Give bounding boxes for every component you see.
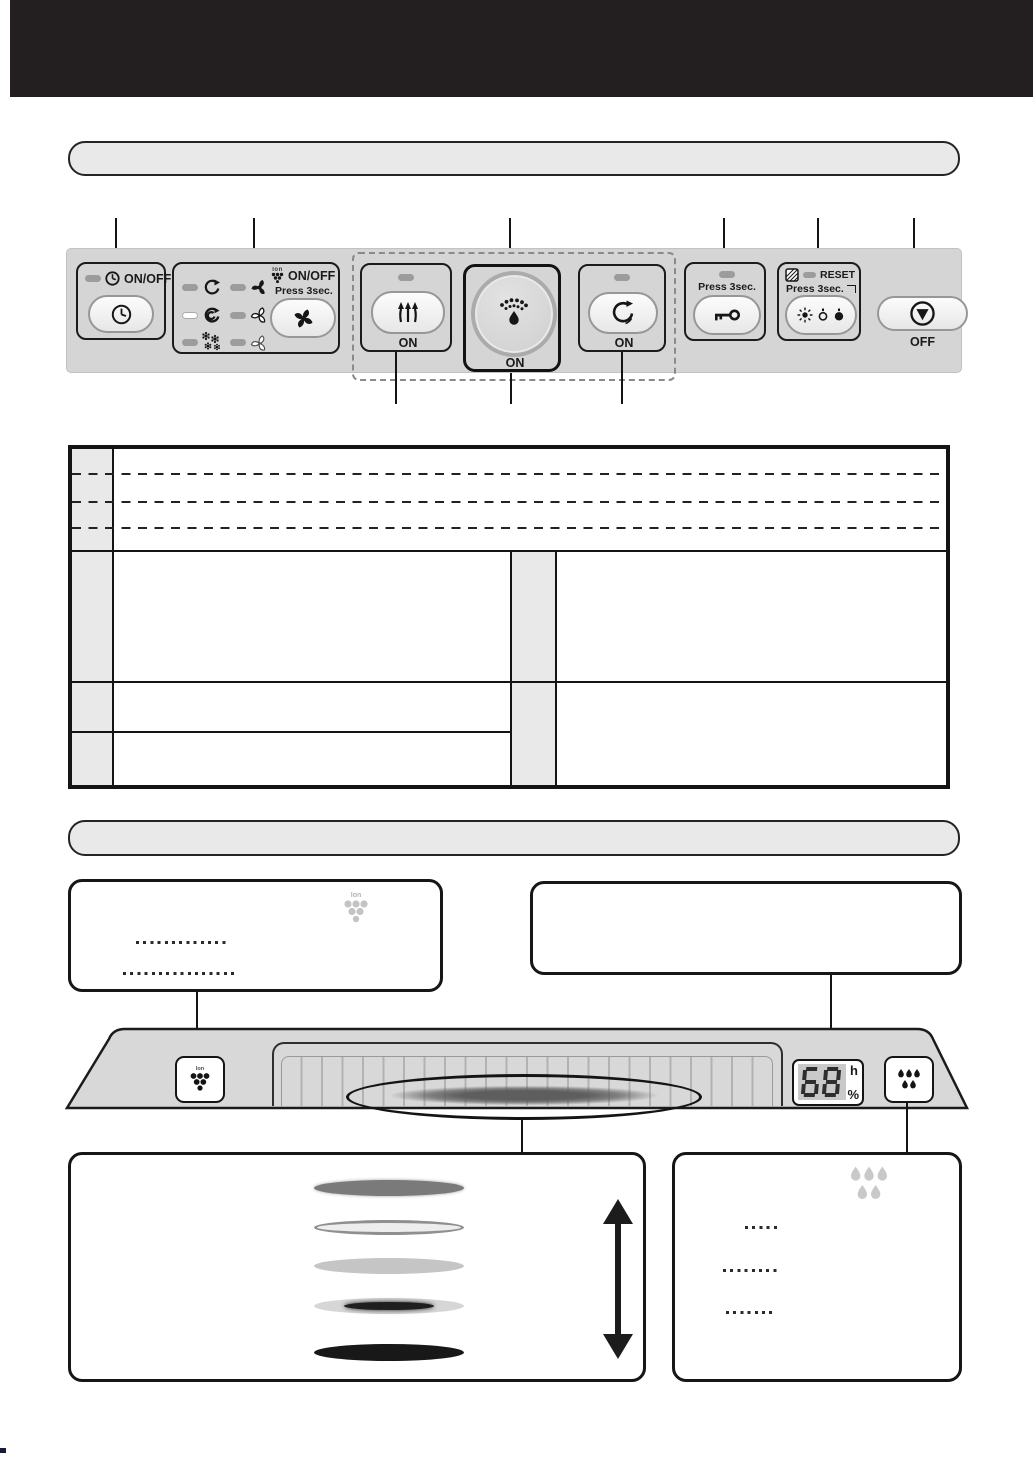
power-off-label: OFF bbox=[877, 335, 968, 349]
humidity-display: h % bbox=[792, 1059, 864, 1106]
table-row-divider-left bbox=[72, 731, 510, 733]
brightness-off-icon bbox=[833, 308, 845, 322]
leader-dots bbox=[745, 1226, 777, 1229]
mist-outlet-highlight bbox=[346, 1074, 702, 1120]
display-digit-area bbox=[798, 1064, 846, 1100]
humidify-button[interactable] bbox=[471, 271, 557, 357]
mist-level-1 bbox=[314, 1344, 464, 1361]
ion-cluster-icon: Ion bbox=[339, 889, 373, 929]
device-ion-button[interactable]: Ion bbox=[175, 1056, 225, 1103]
brightness-group: RESET Press 3sec. bbox=[777, 262, 861, 341]
mist-level-5 bbox=[314, 1180, 464, 1196]
svg-text:Ion: Ion bbox=[272, 267, 283, 273]
timer-group: ON/OFF bbox=[76, 262, 166, 340]
mist-level-box bbox=[68, 1152, 646, 1382]
fan-high-led bbox=[230, 284, 246, 291]
fan-medium-icon bbox=[250, 306, 269, 325]
timer-led bbox=[85, 275, 101, 282]
table-dashed-row-divider bbox=[72, 527, 946, 529]
parts-table bbox=[68, 445, 950, 789]
brightness-button[interactable] bbox=[785, 295, 857, 335]
mode-pollen-led bbox=[182, 339, 198, 346]
fan-high-icon bbox=[250, 278, 269, 297]
mode-turbo-led bbox=[182, 312, 198, 319]
fan-low-icon bbox=[250, 334, 269, 353]
mist-level-4 bbox=[314, 1220, 464, 1235]
power-off-button[interactable] bbox=[877, 296, 968, 331]
table-label-column bbox=[72, 449, 114, 785]
table-dashed-row-divider bbox=[72, 501, 946, 503]
louver-up-icon bbox=[394, 301, 422, 325]
table-row-divider bbox=[72, 681, 946, 683]
ion-icon-label: Ion bbox=[351, 892, 362, 899]
child-lock-press-label: Press 3sec. bbox=[686, 281, 768, 293]
section2-title-bar bbox=[68, 820, 960, 856]
pollen-icon bbox=[200, 332, 223, 352]
child-lock-group: Press 3sec. bbox=[684, 262, 766, 341]
mist-level-3 bbox=[314, 1258, 464, 1274]
swing-group: ON bbox=[578, 264, 666, 352]
swirl-auto-icon bbox=[202, 278, 221, 297]
timer-onoff-label: ON/OFF bbox=[124, 272, 171, 286]
swirl-turbo-icon bbox=[202, 306, 221, 325]
brightness-press-label: Press 3sec. bbox=[786, 283, 844, 295]
leader-dots bbox=[726, 1311, 776, 1314]
header-bar bbox=[10, 0, 1033, 97]
display-value bbox=[802, 1067, 842, 1097]
timer-button[interactable] bbox=[88, 295, 154, 333]
key-icon bbox=[714, 309, 741, 322]
clock-icon bbox=[105, 271, 120, 286]
hold-hook-icon bbox=[847, 285, 856, 293]
leader-line-mist-outlet bbox=[521, 1119, 523, 1153]
table-mid-label-column bbox=[510, 552, 557, 785]
mist-level-2 bbox=[314, 1298, 464, 1314]
mode-press-label: Press 3sec. bbox=[275, 285, 333, 297]
fan-low-led bbox=[230, 339, 246, 346]
ion-cluster-icon: Ion bbox=[187, 1064, 213, 1096]
page-mark bbox=[0, 1448, 6, 1453]
brightness-bright-icon bbox=[797, 307, 813, 323]
leader-dots bbox=[123, 972, 237, 975]
louver-on-label: ON bbox=[362, 336, 454, 350]
filter-hatch-icon bbox=[785, 268, 799, 282]
ion-cluster-icon: Ion bbox=[270, 267, 285, 284]
fan-mode-button[interactable] bbox=[270, 298, 336, 338]
table-row-divider bbox=[72, 550, 946, 552]
leader-dots bbox=[136, 941, 227, 944]
callout-line-humidify-bottom bbox=[510, 373, 512, 404]
table-dashed-row-divider bbox=[72, 473, 946, 475]
display-unit-percent: % bbox=[847, 1087, 859, 1102]
manual-page: ON/OFF bbox=[0, 0, 1033, 1458]
device-ion-label: Ion bbox=[196, 1066, 205, 1072]
ion-callout-box: Ion bbox=[68, 879, 443, 992]
display-unit-hour: h bbox=[850, 1063, 858, 1078]
swing-button[interactable] bbox=[588, 292, 658, 334]
reset-label: RESET bbox=[820, 269, 855, 281]
water-drops-icon bbox=[895, 1068, 923, 1092]
louver-group: ON bbox=[360, 263, 452, 352]
leader-line-drops-button bbox=[906, 1103, 908, 1153]
clock-icon bbox=[111, 304, 132, 325]
section1-title-bar bbox=[68, 141, 960, 176]
swing-on-label: ON bbox=[580, 336, 668, 350]
humidify-group: ON bbox=[463, 264, 561, 372]
swing-led bbox=[614, 274, 630, 281]
callout-line-swing bbox=[621, 352, 623, 404]
child-lock-button[interactable] bbox=[693, 295, 761, 335]
humidify-on-label: ON bbox=[466, 356, 564, 370]
brightness-dim-icon bbox=[817, 308, 829, 322]
ion-onoff-label: ON/OFF bbox=[288, 269, 335, 283]
stop-icon bbox=[909, 300, 936, 327]
louver-led bbox=[398, 274, 414, 281]
device-drops-button[interactable] bbox=[884, 1056, 934, 1103]
leader-dots bbox=[723, 1269, 777, 1272]
water-level-box bbox=[672, 1152, 962, 1382]
propeller-icon bbox=[290, 305, 317, 332]
level-range-arrow bbox=[603, 1199, 633, 1359]
humidity-callout-box bbox=[530, 881, 962, 975]
rotate-icon bbox=[610, 300, 636, 326]
mode-group: Ion ON/OFF Press 3sec. bbox=[172, 262, 340, 354]
water-drops-icon bbox=[845, 1165, 893, 1205]
fan-medium-led bbox=[230, 312, 246, 319]
child-lock-led bbox=[719, 271, 735, 278]
mist-icon bbox=[493, 296, 535, 332]
louver-button[interactable] bbox=[371, 291, 445, 334]
reset-led bbox=[803, 272, 816, 278]
callout-line-louver bbox=[395, 352, 397, 404]
mode-auto-led bbox=[182, 284, 198, 291]
